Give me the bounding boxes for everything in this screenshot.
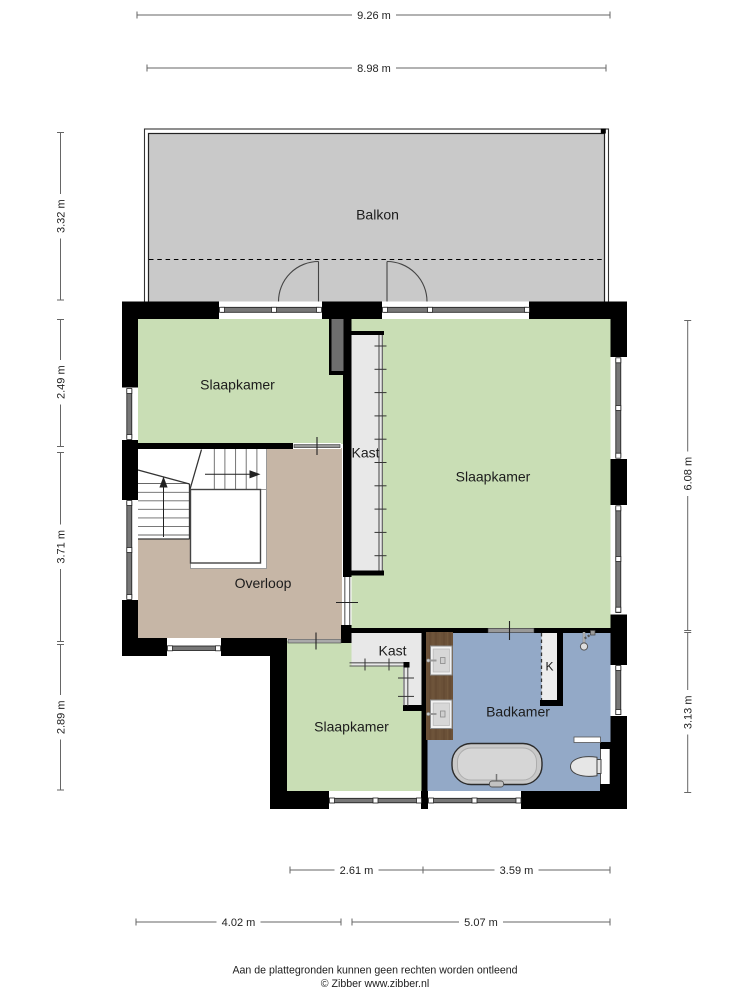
svg-text:5.07 m: 5.07 m: [464, 917, 498, 929]
svg-text:2.49 m: 2.49 m: [56, 365, 68, 399]
svg-text:2.61 m: 2.61 m: [340, 865, 374, 877]
svg-text:3.59 m: 3.59 m: [500, 865, 534, 877]
svg-text:6.08 m: 6.08 m: [683, 457, 695, 491]
svg-text:3.71 m: 3.71 m: [56, 530, 68, 564]
svg-text:Overloop: Overloop: [235, 575, 292, 591]
svg-text:Kast: Kast: [351, 445, 379, 461]
svg-text:3.13 m: 3.13 m: [683, 695, 695, 729]
svg-text:Slaapkamer: Slaapkamer: [314, 719, 389, 735]
svg-text:2.89 m: 2.89 m: [56, 700, 68, 734]
svg-text:Aan de plattegronden kunnen ge: Aan de plattegronden kunnen geen rechten…: [232, 965, 517, 977]
svg-text:Badkamer: Badkamer: [486, 704, 550, 720]
svg-text:Kast: Kast: [378, 643, 406, 659]
svg-text:© Zibber www.zibber.nl: © Zibber www.zibber.nl: [321, 978, 430, 990]
svg-text:9.26 m: 9.26 m: [357, 10, 391, 22]
svg-text:Balkon: Balkon: [356, 207, 399, 223]
svg-text:Slaapkamer: Slaapkamer: [456, 469, 531, 485]
svg-text:8.98 m: 8.98 m: [357, 63, 391, 75]
svg-text:4.02 m: 4.02 m: [222, 917, 256, 929]
svg-text:Slaapkamer: Slaapkamer: [200, 377, 275, 393]
svg-text:K: K: [545, 660, 553, 674]
svg-text:3.32 m: 3.32 m: [56, 199, 68, 233]
